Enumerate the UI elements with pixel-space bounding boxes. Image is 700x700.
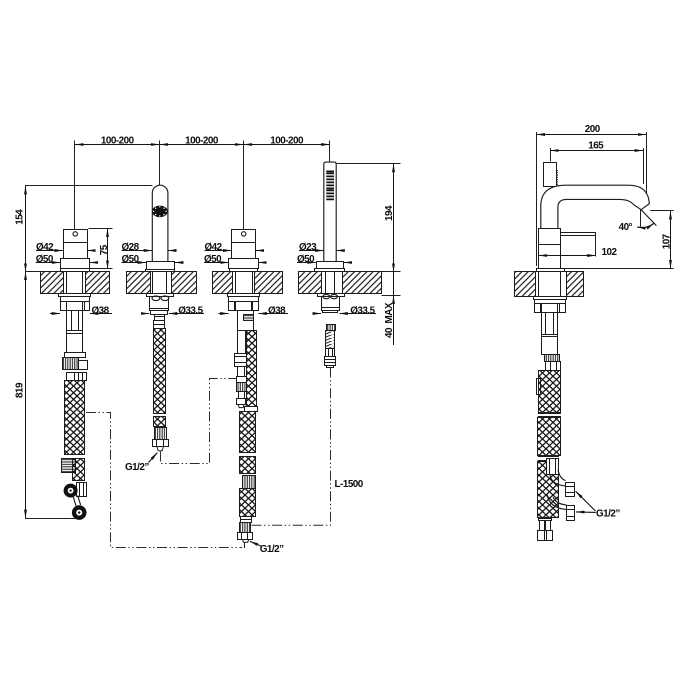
svg-text:Ø38: Ø38 [268, 305, 286, 316]
svg-text:100-200: 100-200 [185, 136, 219, 147]
svg-text:Ø42: Ø42 [205, 242, 223, 253]
svg-text:G1/2”: G1/2” [596, 508, 620, 519]
svg-text:Ø38: Ø38 [92, 305, 110, 316]
svg-text:40°: 40° [619, 222, 633, 233]
svg-text:G1/2”: G1/2” [260, 544, 284, 555]
svg-text:154: 154 [14, 209, 25, 225]
svg-text:75: 75 [99, 244, 110, 255]
svg-text:40 MAX: 40 MAX [384, 302, 395, 338]
svg-text:200: 200 [585, 124, 601, 135]
svg-text:102: 102 [602, 247, 618, 258]
svg-text:Ø50: Ø50 [122, 254, 140, 265]
svg-text:194: 194 [384, 205, 395, 221]
svg-text:819: 819 [14, 382, 25, 398]
svg-text:100-200: 100-200 [101, 136, 135, 147]
svg-text:Ø50: Ø50 [297, 254, 315, 265]
svg-text:165: 165 [588, 141, 604, 152]
svg-text:100-200: 100-200 [270, 136, 304, 147]
svg-text:Ø50: Ø50 [36, 254, 54, 265]
svg-text:Ø23: Ø23 [299, 242, 317, 253]
svg-text:Ø33.5: Ø33.5 [178, 305, 203, 316]
svg-text:L-1500: L-1500 [335, 479, 364, 490]
svg-text:Ø28: Ø28 [122, 242, 140, 253]
svg-text:G1/2”: G1/2” [125, 462, 149, 473]
svg-text:Ø42: Ø42 [36, 242, 54, 253]
svg-text:Ø33.5: Ø33.5 [350, 305, 375, 316]
svg-text:107: 107 [661, 233, 672, 249]
svg-text:Ø50: Ø50 [204, 254, 222, 265]
